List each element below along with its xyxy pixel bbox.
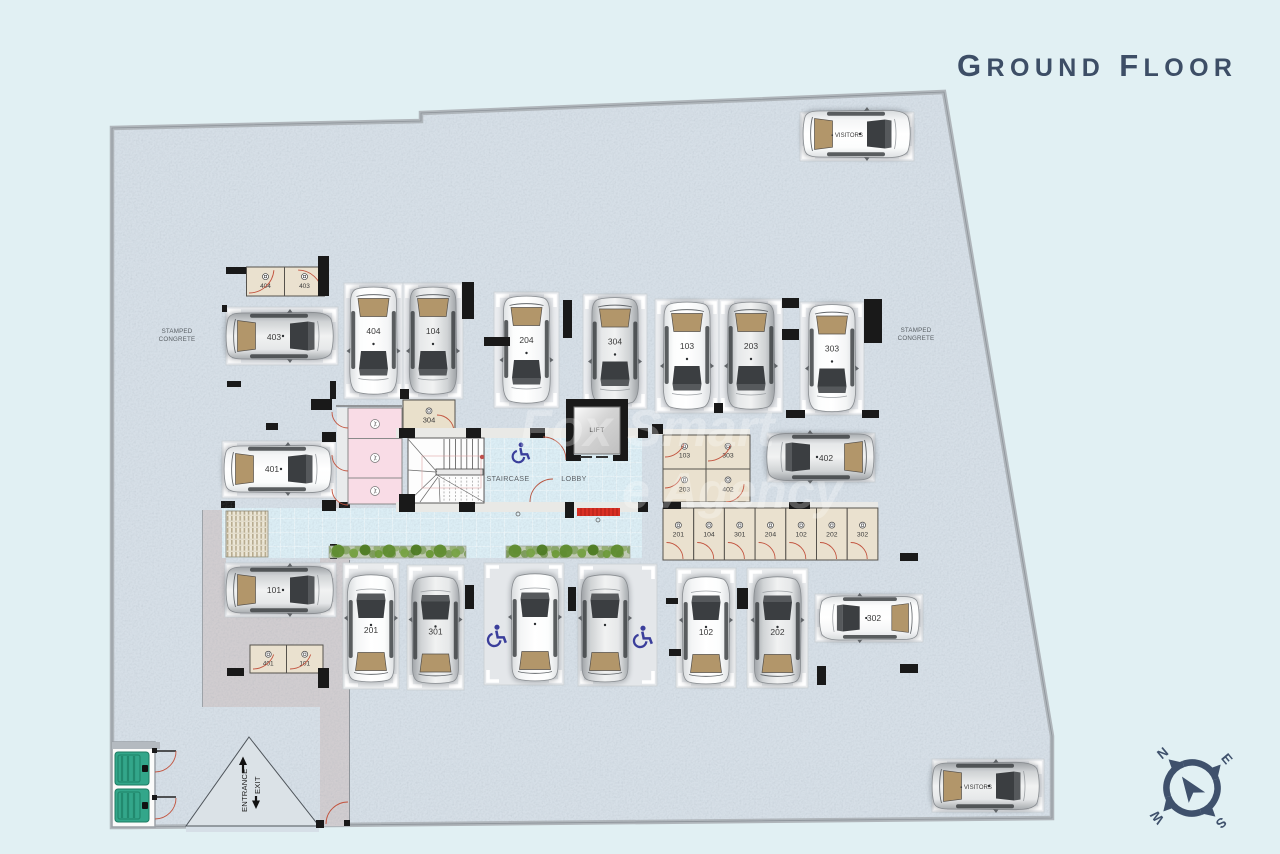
svg-text:STAIRCASE: STAIRCASE (487, 474, 530, 483)
svg-text:403: 403 (267, 332, 281, 342)
svg-text:402: 402 (819, 453, 833, 463)
svg-text:202: 202 (826, 532, 838, 539)
svg-text:204: 204 (765, 532, 777, 539)
svg-text:304: 304 (608, 337, 622, 347)
svg-text:102: 102 (795, 532, 807, 539)
svg-text:Fox Smart: Fox Smart (520, 400, 777, 458)
svg-text:▪ VISITORS: ▪ VISITORS (831, 133, 863, 139)
svg-text:302: 302 (857, 532, 869, 539)
svg-text:303: 303 (825, 344, 839, 354)
svg-text:403: 403 (299, 283, 310, 290)
svg-text:301: 301 (428, 627, 442, 637)
svg-text:GROUND FLOOR: GROUND FLOOR (957, 48, 1237, 83)
svg-text:STAMPED: STAMPED (901, 327, 932, 334)
svg-text:EXIT: EXIT (253, 776, 262, 794)
svg-text:▪ VISITORS: ▪ VISITORS (960, 785, 992, 791)
svg-text:STAMPED: STAMPED (162, 328, 193, 335)
svg-text:LOBBY: LOBBY (561, 474, 586, 483)
svg-text:e Agency: e Agency (622, 463, 845, 519)
svg-text:104: 104 (426, 326, 440, 336)
svg-text:201: 201 (673, 532, 685, 539)
svg-text:302: 302 (867, 613, 881, 623)
svg-text:104: 104 (703, 532, 715, 539)
svg-text:103: 103 (680, 341, 694, 351)
svg-text:201: 201 (364, 625, 378, 635)
svg-text:304: 304 (423, 415, 436, 424)
svg-text:301: 301 (734, 532, 746, 539)
svg-text:404: 404 (366, 326, 380, 336)
svg-text:401: 401 (265, 464, 279, 474)
svg-text:ENTRANCE: ENTRANCE (240, 769, 249, 812)
svg-text:102: 102 (699, 627, 713, 637)
svg-text:203: 203 (744, 341, 758, 351)
svg-text:202: 202 (770, 627, 784, 637)
svg-text:101: 101 (267, 585, 281, 595)
svg-text:401: 401 (263, 661, 274, 668)
svg-text:204: 204 (519, 335, 533, 345)
svg-text:CONGRETE: CONGRETE (898, 335, 935, 342)
svg-text:CONGRETE: CONGRETE (159, 336, 196, 343)
svg-text:101: 101 (299, 661, 310, 668)
